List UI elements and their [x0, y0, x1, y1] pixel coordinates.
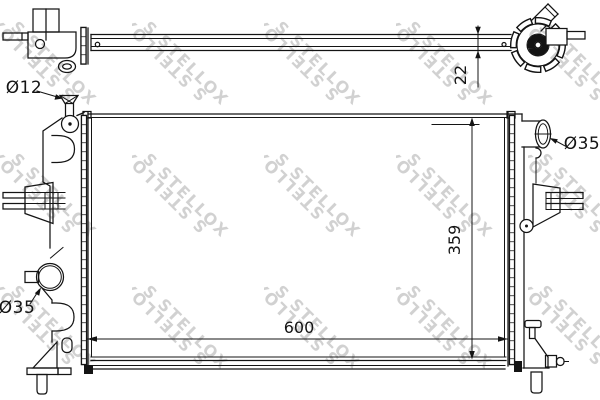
- dim-label-core-width: 600: [284, 318, 315, 337]
- dim-label-filler-diameter: Ø12: [6, 78, 43, 98]
- dim-label-core-height: 359: [445, 225, 464, 256]
- drawing-canvas: S STELLOX S STELLOX: [0, 0, 600, 400]
- dim-label-top-thickness: 22: [451, 65, 470, 85]
- dim-label-right-port-diameter: Ø35: [564, 134, 600, 154]
- radiator-technical-drawing: S STELLOX S STELLOX: [0, 0, 600, 400]
- dim-label-left-port-diameter: Ø35: [0, 298, 35, 318]
- pipe-union: [546, 29, 567, 46]
